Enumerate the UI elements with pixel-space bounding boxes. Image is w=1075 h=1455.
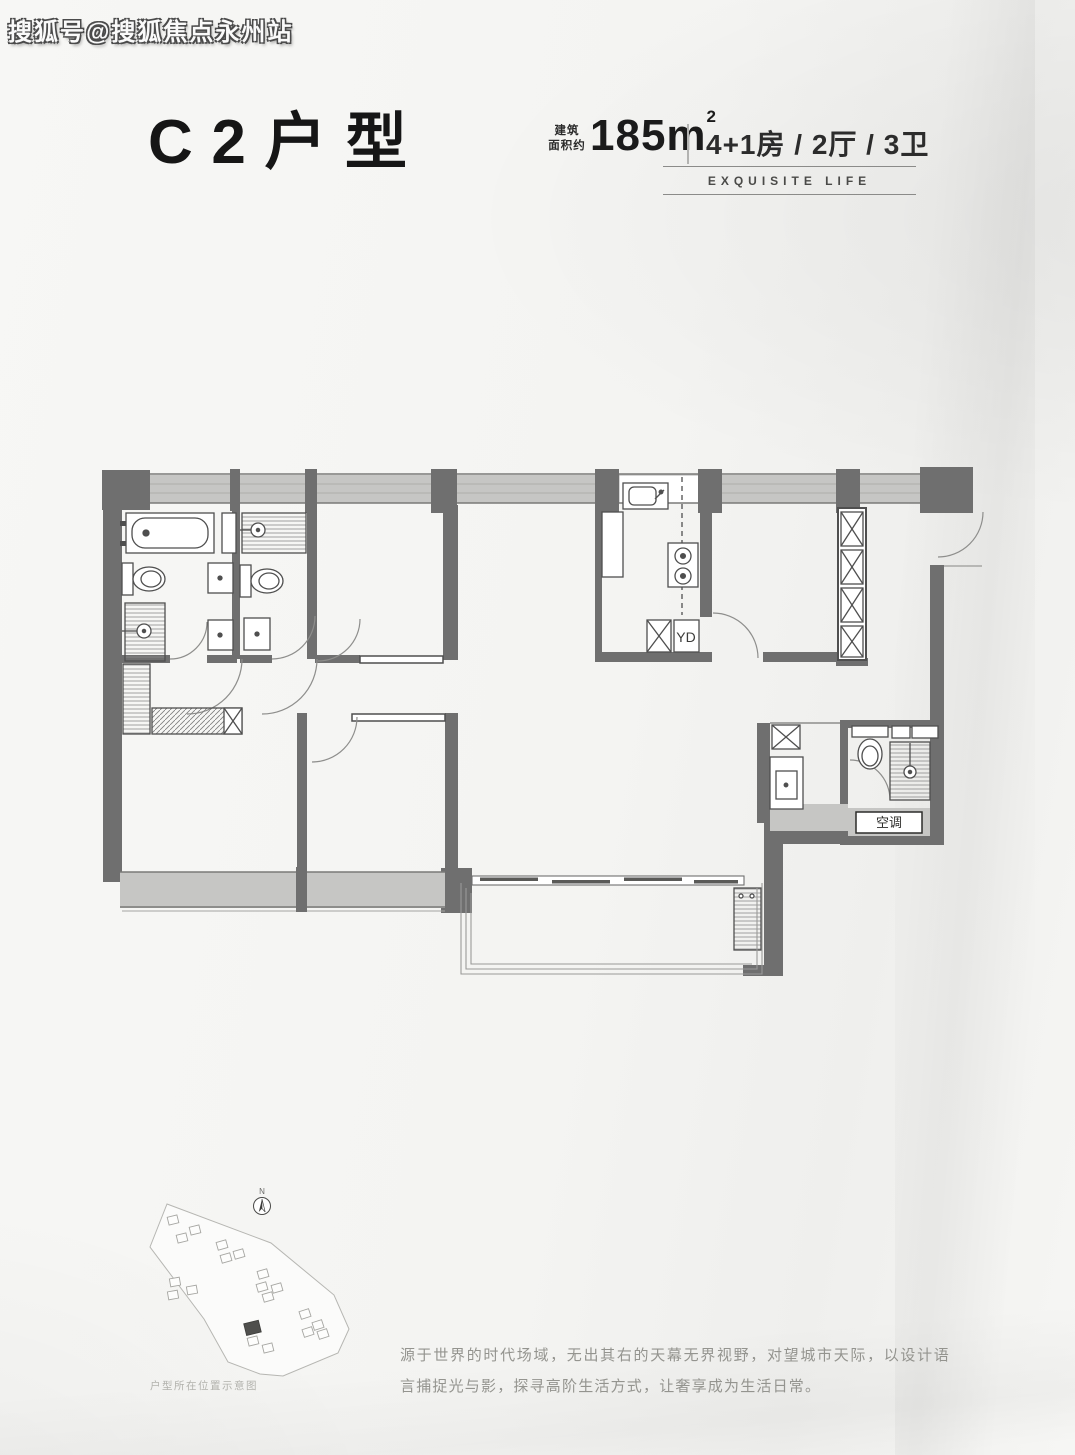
storage-cabinet bbox=[772, 725, 800, 749]
study-door-arc bbox=[318, 619, 360, 661]
toilet bbox=[852, 726, 888, 769]
site-boundary bbox=[150, 1204, 349, 1376]
mirror-cabinet bbox=[222, 513, 236, 553]
hall-door-arc bbox=[262, 659, 317, 714]
sliding-door bbox=[472, 876, 744, 885]
tagline-text: EXQUISITE LIFE bbox=[663, 167, 916, 194]
ac-label: 空调 bbox=[876, 815, 902, 830]
floorplan: YD 空调 bbox=[0, 455, 1075, 995]
shower bbox=[890, 742, 930, 800]
area-prefix-label: 建筑 面积约 bbox=[546, 124, 588, 154]
shower bbox=[122, 603, 165, 661]
stove bbox=[668, 543, 698, 587]
marketing-description: 源于世界的时代场域，无出其右的天幕无界视野，对望城市天际，以设计语言捕捉光与影，… bbox=[400, 1340, 950, 1402]
bedroom2-door-arc bbox=[312, 717, 357, 762]
laundry-label: YD bbox=[676, 629, 695, 645]
sitemap-caption: 户型所在位置示意图 bbox=[150, 1378, 258, 1393]
bathtub bbox=[120, 513, 214, 553]
bath3-cabinets bbox=[892, 726, 938, 738]
toilet bbox=[122, 563, 165, 595]
area-prefix-line1: 建筑 bbox=[555, 125, 580, 137]
shower bbox=[240, 513, 306, 553]
area-prefix-line2: 面积约 bbox=[548, 140, 586, 152]
tagline-rule-bottom bbox=[663, 194, 916, 195]
kitchen-door-arc bbox=[713, 613, 758, 658]
hall-closet-column bbox=[838, 508, 866, 660]
double-vanity bbox=[208, 563, 233, 650]
vanity bbox=[244, 618, 270, 650]
tagline-box: EXQUISITE LIFE bbox=[663, 166, 916, 195]
bottom-window-band bbox=[120, 867, 445, 912]
entry-door-arc bbox=[938, 512, 983, 557]
watermark: 搜狐号@搜狐焦点永州站 bbox=[8, 12, 293, 47]
spec-divider-line bbox=[687, 124, 689, 164]
closet-door-arc bbox=[187, 659, 242, 714]
north-compass-icon: N bbox=[254, 1187, 271, 1215]
kitchen-sink bbox=[623, 483, 668, 509]
area-value: 185m2 bbox=[590, 107, 717, 161]
area-number: 185m bbox=[590, 111, 707, 160]
site-map: N bbox=[125, 1178, 385, 1378]
layout-spec: 4+1房 / 2厅 / 3卫 bbox=[706, 123, 929, 163]
kitchen-cabinet bbox=[647, 620, 671, 652]
toilet bbox=[240, 565, 283, 597]
poster-page: 搜狐号@搜狐焦点永州站 C2户型 建筑 面积约 185m2 4+1房 / 2厅 … bbox=[0, 0, 1075, 1455]
vanity bbox=[770, 757, 803, 809]
bath1-door-arc bbox=[170, 622, 207, 659]
page-title: C2户型 bbox=[148, 112, 426, 174]
north-label: N bbox=[259, 1187, 265, 1196]
thin-walls bbox=[352, 656, 445, 721]
balcony bbox=[461, 876, 762, 974]
